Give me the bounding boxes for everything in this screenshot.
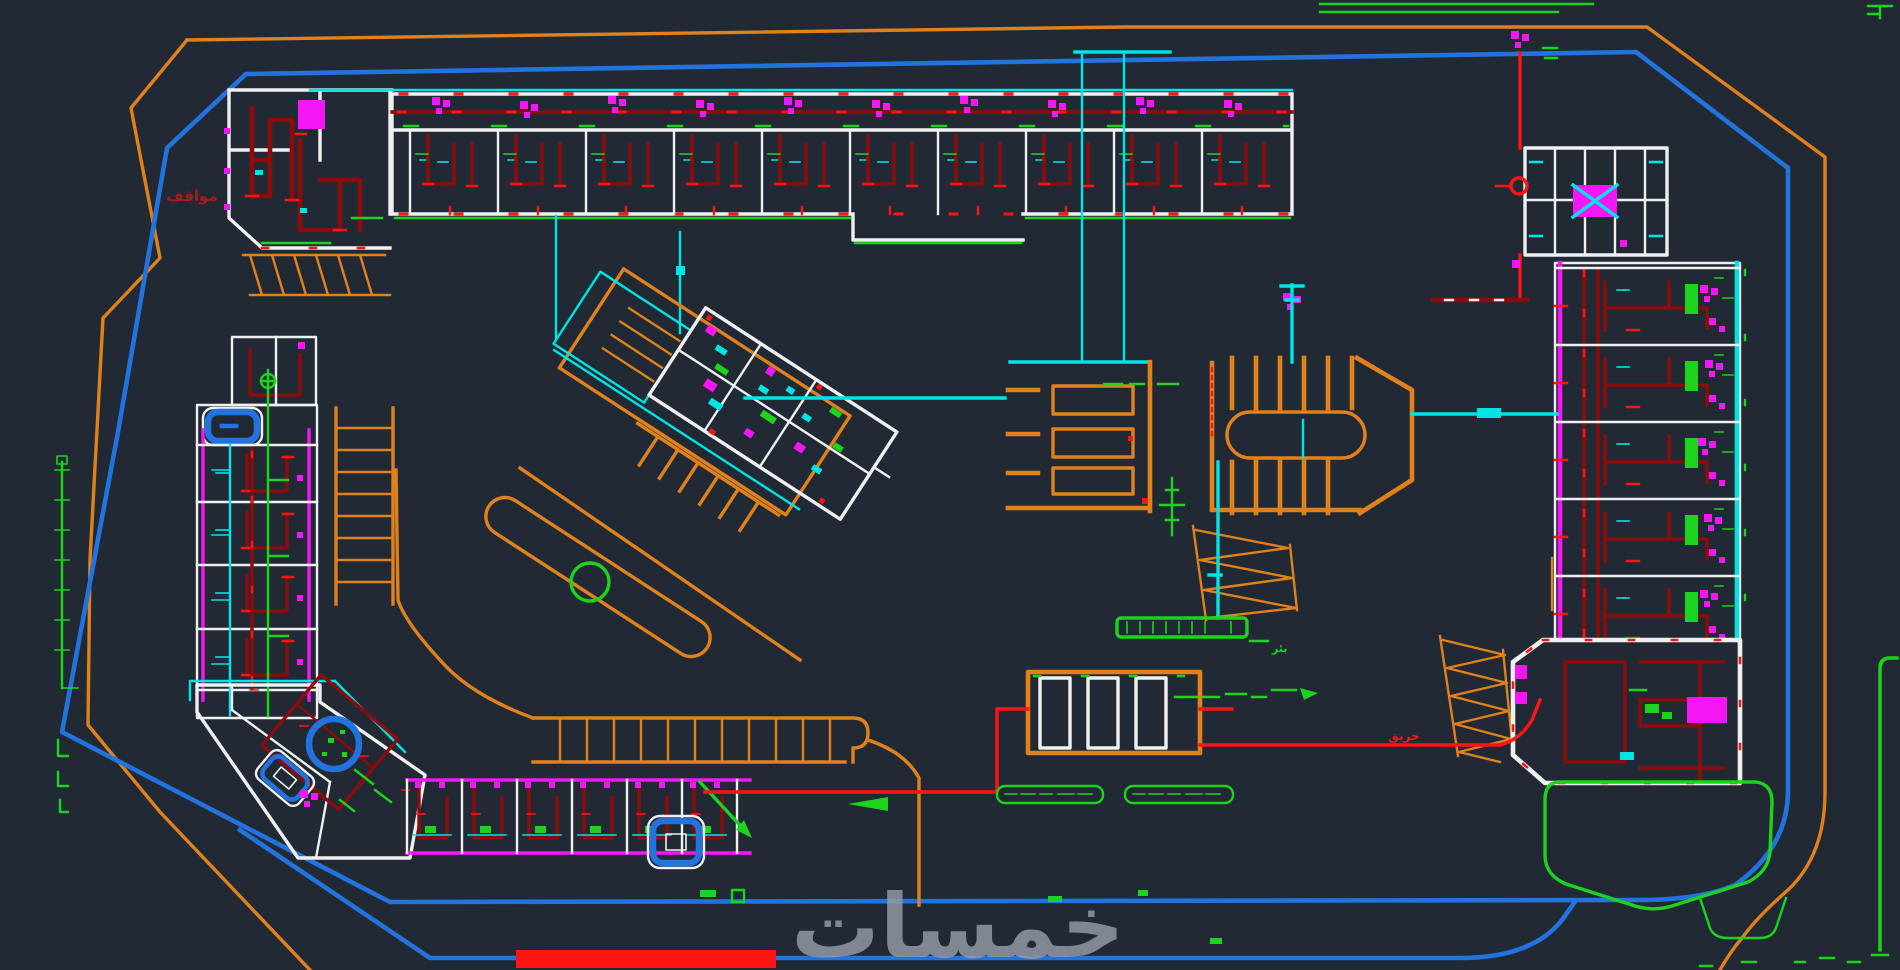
diagonal-building [524, 249, 912, 583]
corner-building [190, 675, 425, 858]
bottom-row-building [407, 780, 752, 868]
well-label: بئر [1271, 642, 1287, 655]
green-pond [1545, 782, 1772, 909]
red-title-bar [516, 950, 776, 968]
pump-room [1028, 672, 1200, 753]
spa-icon [253, 747, 318, 809]
top-left-block: مواقف [166, 90, 392, 248]
green-label-pills [997, 786, 1233, 803]
spa-round-icon [648, 816, 704, 868]
pool-icon [203, 408, 262, 445]
cad-canvas[interactable]: مواقف [0, 0, 1900, 970]
green-east-edge [1700, 658, 1897, 966]
cyan-water-risers [556, 52, 1170, 362]
pool-round-icon [309, 719, 359, 769]
fixture-magenta-square [298, 100, 325, 129]
right-wing-building [1555, 263, 1745, 640]
water-well-bar: بئر [1117, 618, 1287, 655]
stair-coil-center [1193, 526, 1297, 620]
parking-label: مواقف [166, 187, 218, 205]
internal-roads-orange [243, 255, 1552, 905]
fixture-magenta-blob [1687, 697, 1727, 723]
green-text-row [1175, 688, 1318, 700]
road-loop-blue [62, 52, 1788, 958]
stair-hatch-west [336, 428, 393, 582]
west-dimension-line [55, 456, 78, 812]
arrow-icon-west [848, 797, 888, 811]
green-north-lines [1320, 4, 1892, 18]
top-strip-building [310, 90, 1301, 310]
parking-bar-teeth [560, 718, 830, 762]
east-parking-comb [1209, 285, 1557, 618]
watermark-text: خمسات [791, 875, 1124, 970]
left-wing-building [197, 337, 317, 718]
fire-line-label: حريق [1388, 729, 1419, 743]
cad-model-space: مواقف [0, 0, 1900, 970]
top-right-annex [1433, 31, 1667, 300]
stair-hatch-north [243, 255, 390, 295]
bottom-right-building [1513, 640, 1740, 783]
